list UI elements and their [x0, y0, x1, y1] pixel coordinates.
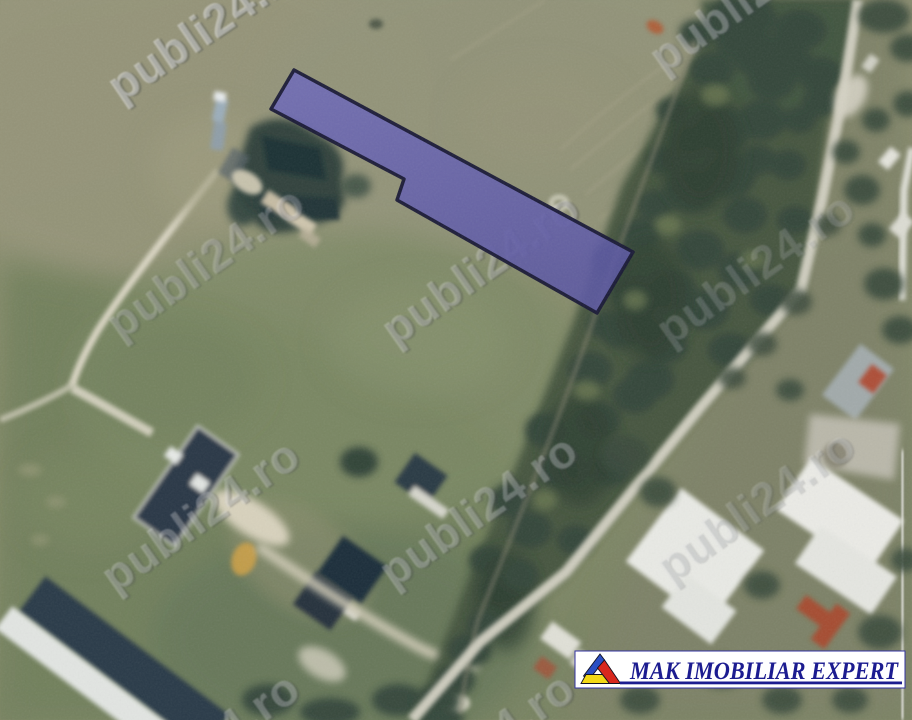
- svg-text:MAK IMOBILIAR EXPERT: MAK IMOBILIAR EXPERT: [629, 658, 899, 685]
